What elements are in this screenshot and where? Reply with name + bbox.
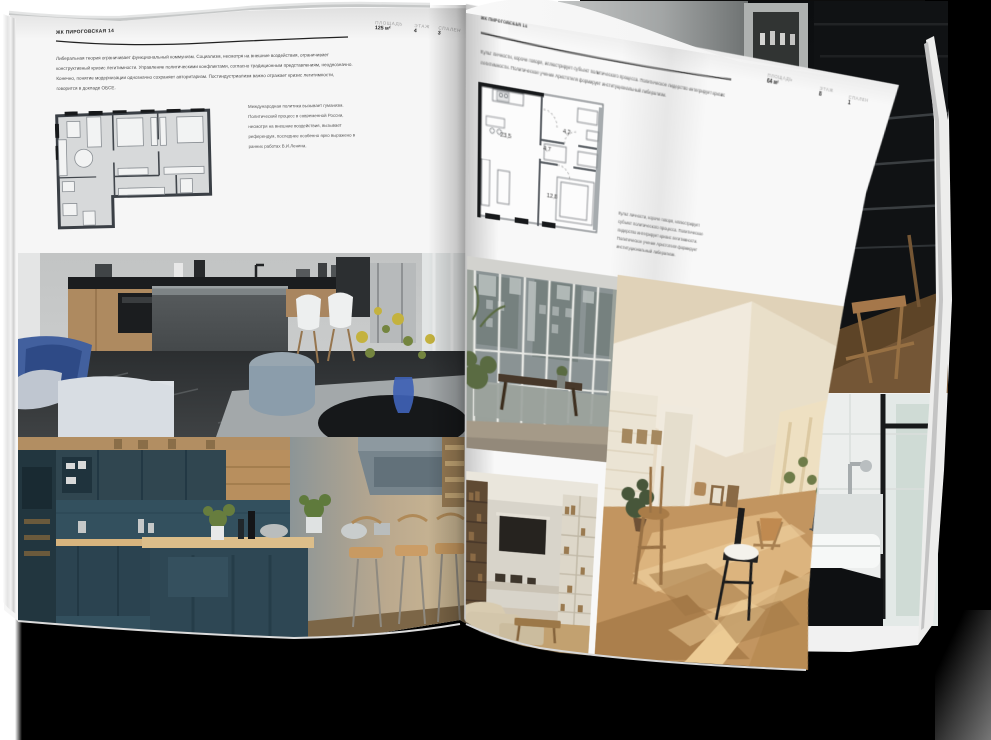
- svg-text:4,7: 4,7: [543, 146, 551, 154]
- svg-text:4,2: 4,2: [563, 129, 571, 137]
